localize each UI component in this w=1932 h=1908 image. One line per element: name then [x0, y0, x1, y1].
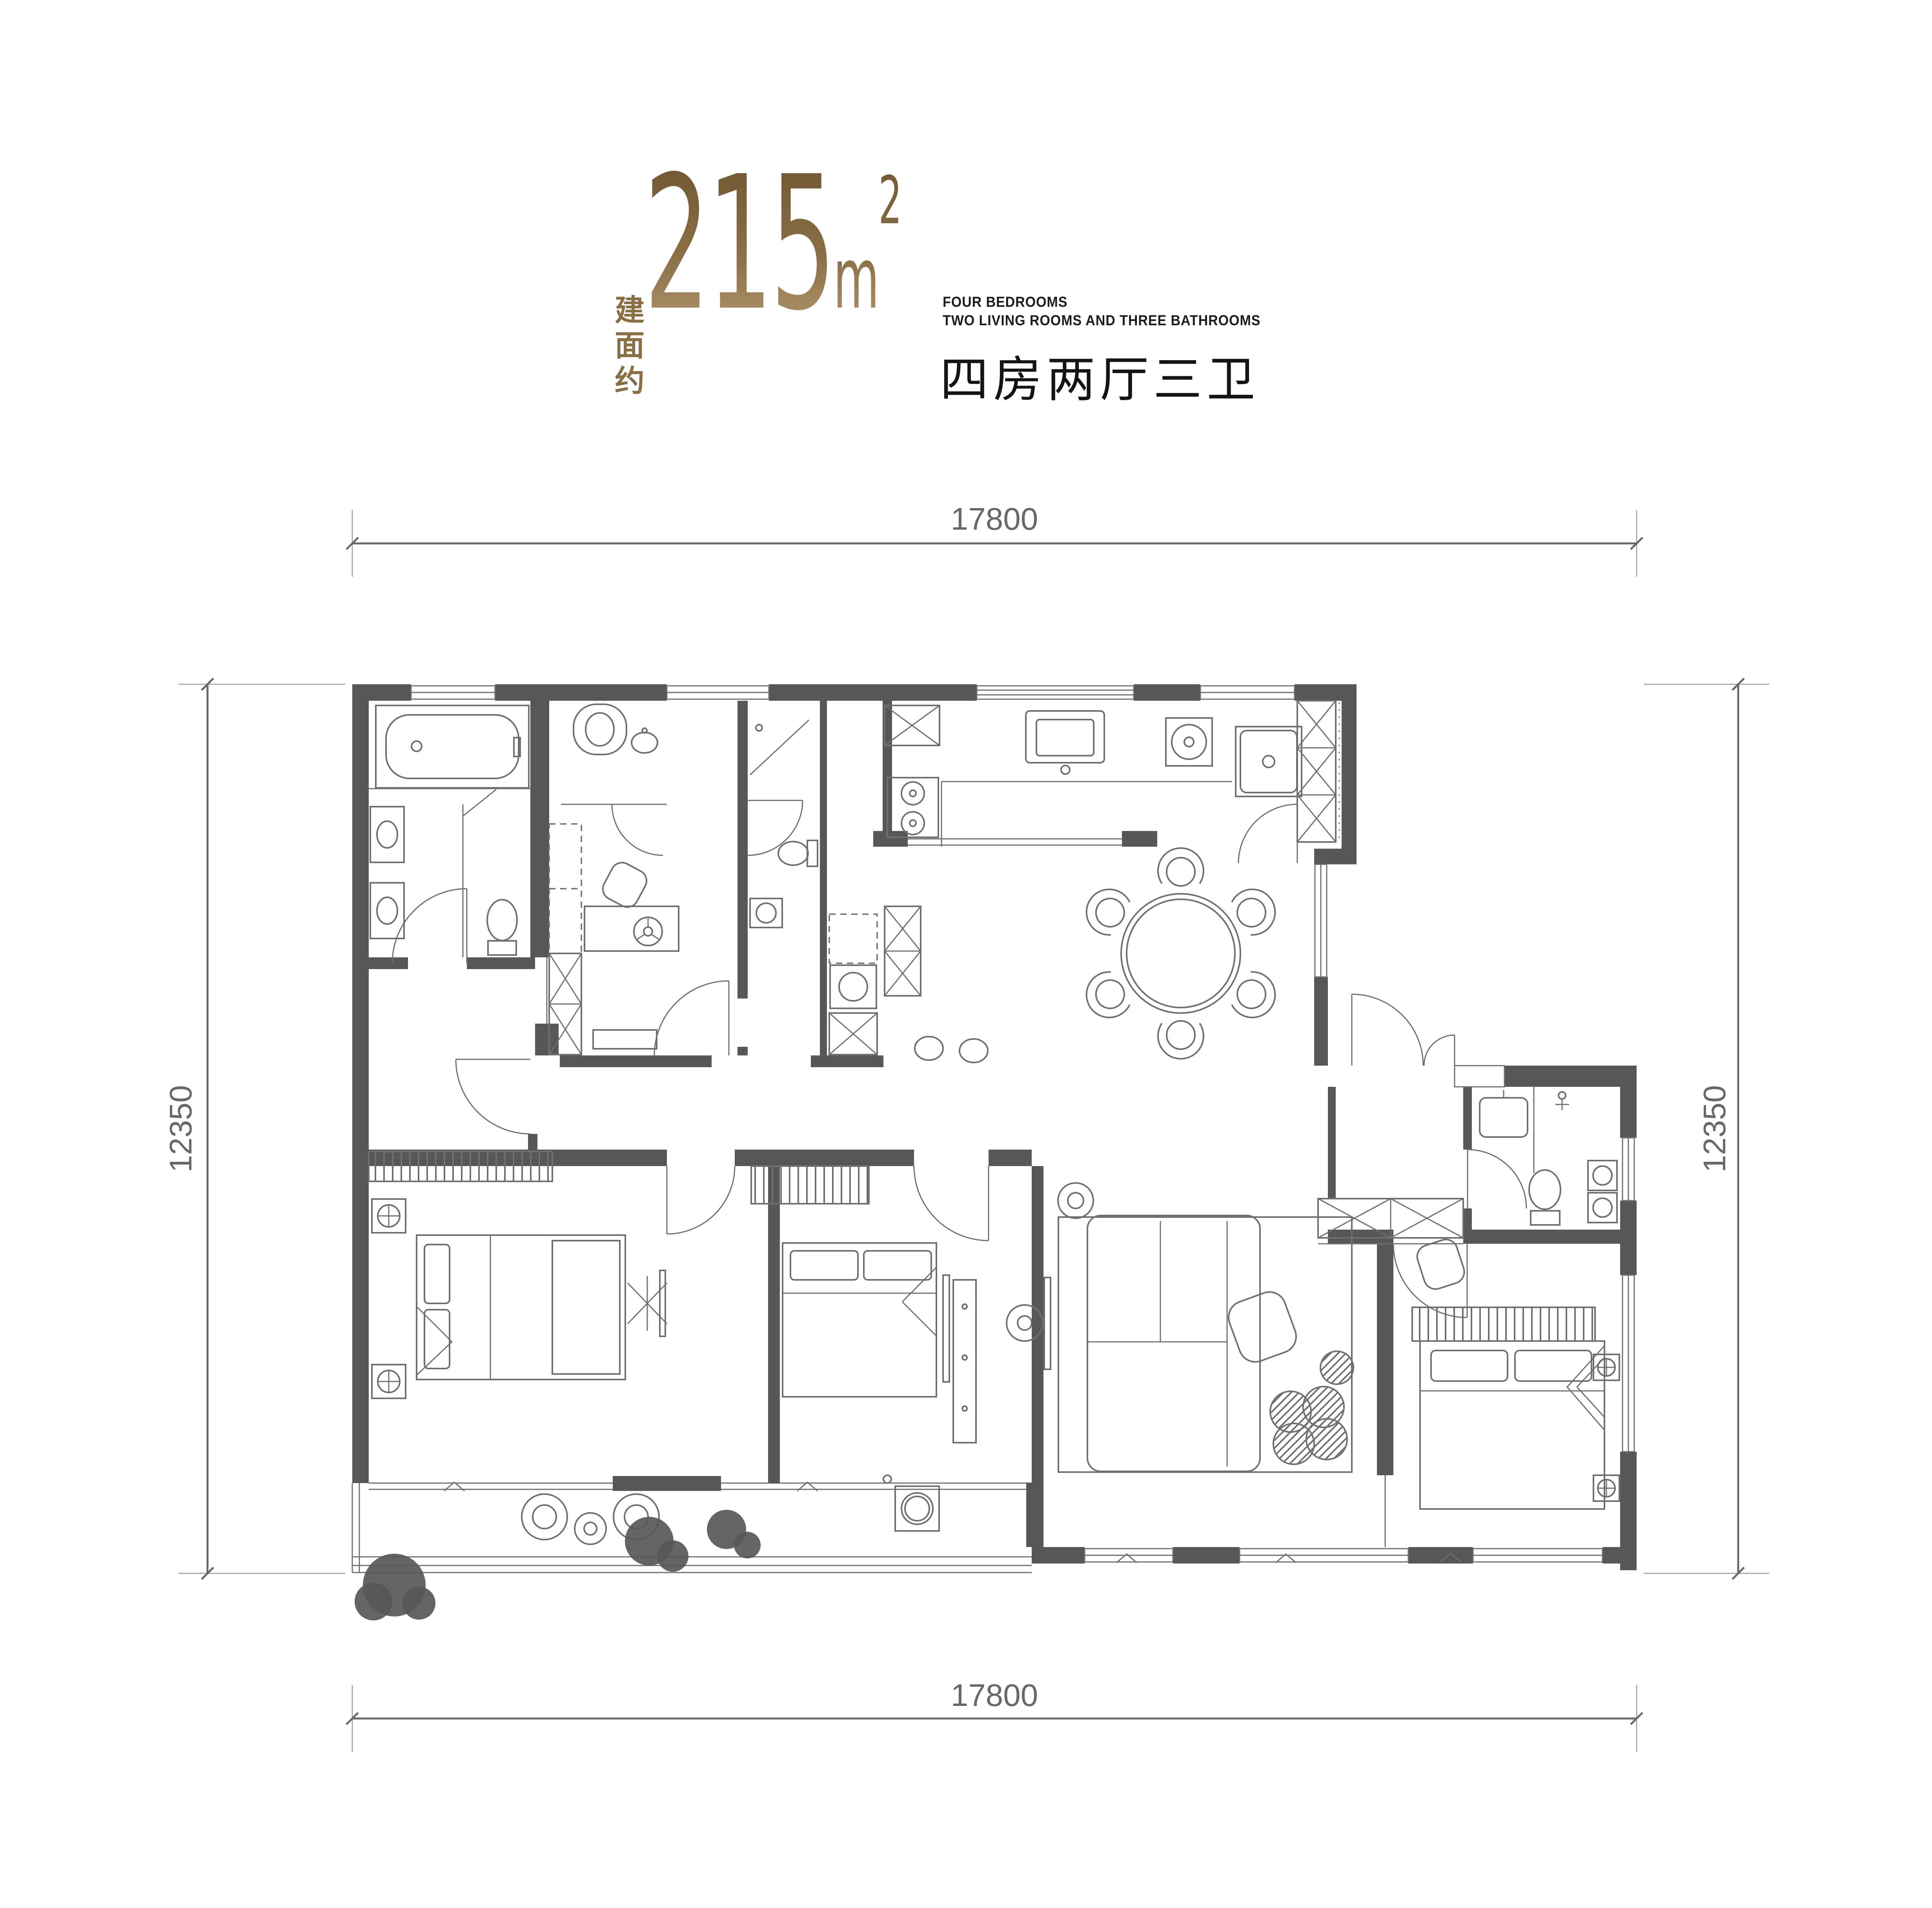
round-stool: [1320, 1351, 1353, 1384]
bedroom1-door: [667, 1166, 735, 1234]
dim-right: 12350: [1697, 1085, 1732, 1172]
window-pantry: [1200, 686, 1295, 699]
bedroom3-bed: [1420, 1341, 1604, 1509]
dressing-door: [654, 981, 729, 1055]
window-guest-bath: [1622, 1138, 1634, 1201]
window-dressing: [667, 686, 769, 699]
entry-door-leaf2: [1424, 1035, 1455, 1066]
dim-top: 17800: [951, 501, 1038, 536]
bedroom3-corner-units: [1593, 1354, 1619, 1501]
balcony: [355, 1475, 939, 1620]
guest-toilet: [1529, 1170, 1561, 1225]
bar-stool: [915, 1037, 943, 1060]
windows: [411, 686, 1634, 1563]
puff-ottoman: [1270, 1387, 1347, 1464]
room-living: [1007, 1183, 1353, 1472]
shower-faucet: [1555, 1092, 1569, 1110]
window-entry-side: [1315, 864, 1327, 977]
tv-panel: [1044, 1277, 1051, 1369]
window-master-bath: [411, 686, 495, 699]
bedroom2-bench: [943, 1275, 949, 1382]
entry-threshold: [1455, 1066, 1504, 1087]
room-bedroom3: [1412, 1236, 1619, 1509]
washer: [830, 965, 876, 1008]
wc-basin: [632, 733, 657, 753]
window-bedroom3: [1622, 1275, 1634, 1452]
bath2-door: [748, 800, 803, 855]
bedroom2-bed: [783, 1243, 936, 1397]
bath2-toilet: [778, 840, 818, 866]
double-vanity: [370, 807, 404, 939]
room-dressing-study: [549, 824, 679, 1055]
guest-vanity: [1480, 1090, 1528, 1137]
vent-shaft: [885, 705, 940, 745]
wc-door: [612, 804, 663, 855]
pantry-door: [1238, 804, 1297, 863]
bath2-sink: [750, 898, 782, 928]
bar-stool: [960, 1039, 988, 1062]
fridge: [1236, 727, 1302, 796]
room-master-bathroom: [369, 705, 530, 957]
sofa: [1087, 1216, 1260, 1471]
bedroom2-dresser: [953, 1280, 976, 1443]
room-bath2: [750, 720, 818, 928]
room-kitchen: [885, 701, 1339, 847]
room-guest-bath: [1480, 1090, 1617, 1225]
bedroom3-headboard: [1412, 1307, 1595, 1341]
bedroom1-curtain-box: [369, 1152, 552, 1181]
bedroom2-door: [914, 1166, 989, 1241]
desk-ornament: [634, 917, 662, 946]
desk-chair: [599, 859, 650, 911]
room-bedroom2: [751, 1166, 976, 1443]
dining-chairs: [1078, 848, 1283, 1059]
laundry-closet: [829, 914, 877, 1055]
shower-screen: [463, 789, 496, 957]
wardrobe-dashed: [549, 824, 581, 953]
bedroom1-mirror: [628, 1270, 667, 1336]
counter-edge: [941, 782, 1232, 847]
shower-glass: [750, 720, 809, 775]
lamp-side-table: [1058, 1183, 1093, 1218]
window-kitchen: [977, 686, 1134, 699]
floor-plan-canvas: 17800 17800 12350 12350: [0, 0, 1932, 1908]
bedroom1-bed: [417, 1235, 625, 1380]
bedroom2-headboard: [751, 1166, 869, 1204]
window-living-south: [1085, 1549, 1602, 1563]
island-bar: [885, 906, 988, 1062]
stacked-laundry: [1588, 1161, 1617, 1223]
bedroom1-corner-units: [372, 1199, 406, 1398]
bedroom3-chair: [1414, 1236, 1467, 1292]
room-dining: [885, 848, 1284, 1062]
low-cabinet: [593, 1030, 657, 1049]
guest-bath-door: [1468, 1150, 1526, 1208]
bedroom3-door: [1393, 1244, 1467, 1318]
lounge-chair: [1224, 1287, 1301, 1367]
dim-bottom: 17800: [951, 1678, 1038, 1713]
cooktop: [887, 778, 938, 837]
room-wc: [574, 704, 657, 754]
entry-door: [1352, 994, 1423, 1066]
kitchen-sliding-door: [908, 839, 1122, 845]
steamer: [1166, 718, 1212, 766]
dim-left: 12350: [163, 1085, 198, 1172]
kitchen-sink: [1026, 711, 1104, 774]
room-bedroom1: [369, 1152, 667, 1398]
master-corridor-door: [456, 1059, 530, 1134]
master-toilet: [487, 900, 517, 955]
desk: [585, 906, 679, 951]
dining-table: [1121, 894, 1240, 1013]
interior-walls: [352, 701, 1620, 1547]
pantry-x-cabinet: [1297, 701, 1339, 842]
laundry-x-cabinet: [829, 1013, 877, 1055]
wc-toilet: [574, 704, 626, 754]
floorplan-sheet: 建面约 215m2 FOUR BEDROOMS TWO LIVING ROOMS…: [0, 0, 1932, 1908]
balcony-envelope: [352, 1476, 1032, 1573]
